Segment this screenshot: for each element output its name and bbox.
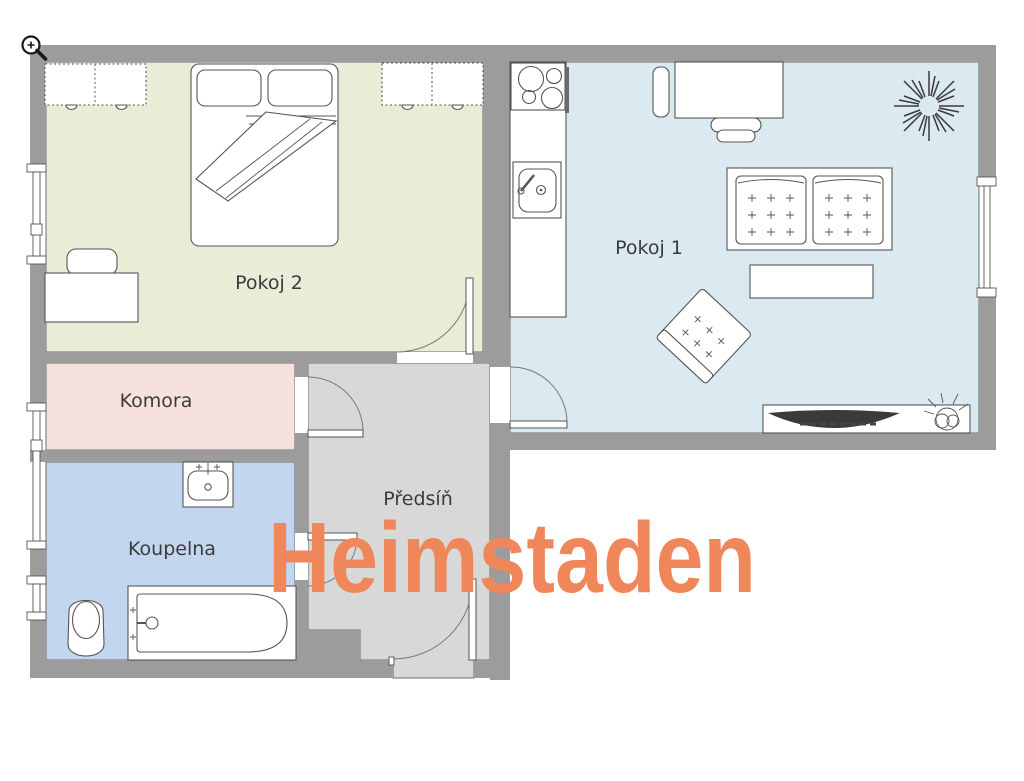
window — [27, 576, 46, 620]
wardrobe-icon — [382, 63, 483, 110]
coffee-table-icon — [750, 265, 873, 298]
double-bed-icon — [191, 64, 338, 246]
sofa-icon — [727, 168, 892, 250]
kitchen-counter — [510, 62, 569, 317]
room-label-koupelna: Koupelna — [128, 538, 216, 560]
floorplan-canvas: Pokoj 2 Pokoj 1 Komora Koupelna Předsíň … — [0, 0, 1024, 781]
stove-icon — [511, 63, 569, 113]
washbasin-icon — [183, 462, 233, 507]
window — [977, 177, 996, 297]
window — [27, 403, 46, 549]
room-label-komora: Komora — [120, 390, 193, 412]
kitchen-sink-icon — [513, 162, 561, 218]
watermark-heimstaden: Heimstaden — [268, 502, 756, 614]
room-label-pokoj1: Pokoj 1 — [615, 237, 683, 259]
wardrobe-icon — [45, 64, 146, 110]
room-label-pokoj2: Pokoj 2 — [235, 272, 303, 294]
toilet-icon — [68, 601, 104, 657]
window — [27, 164, 46, 264]
